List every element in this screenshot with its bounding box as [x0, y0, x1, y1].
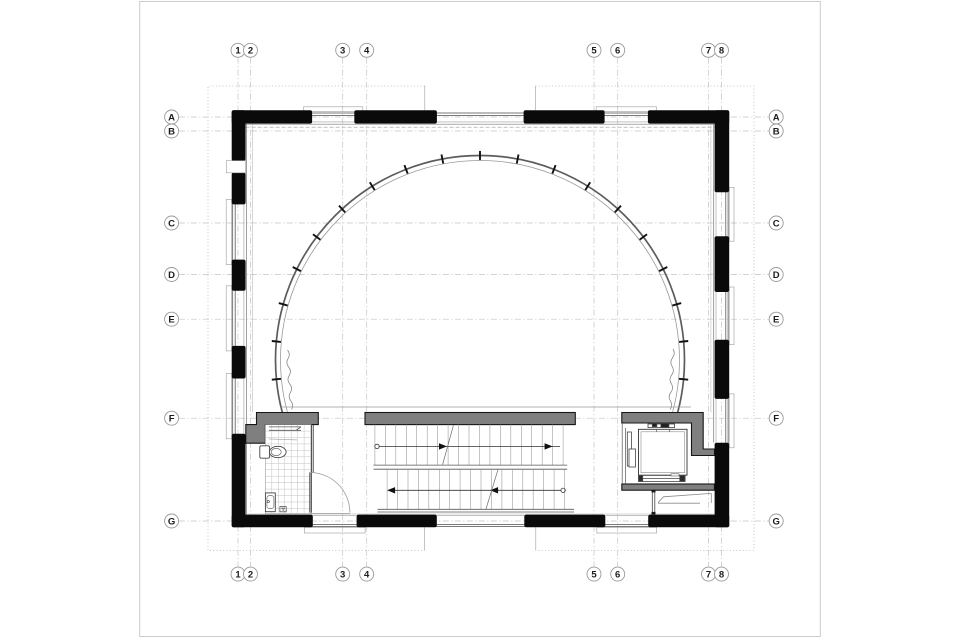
svg-text:5: 5: [591, 569, 597, 580]
svg-text:6: 6: [615, 569, 620, 580]
svg-text:8: 8: [719, 46, 724, 57]
svg-text:D: D: [168, 270, 175, 281]
svg-text:1: 1: [235, 569, 241, 580]
svg-text:B: B: [168, 126, 175, 137]
svg-text:A: A: [773, 112, 780, 123]
svg-text:E: E: [168, 315, 174, 326]
svg-text:6: 6: [615, 46, 620, 57]
svg-text:G: G: [773, 516, 780, 527]
svg-text:5: 5: [591, 46, 597, 57]
svg-text:8: 8: [719, 569, 724, 580]
svg-text:3: 3: [340, 569, 345, 580]
svg-text:E: E: [773, 315, 779, 326]
svg-text:C: C: [168, 218, 175, 229]
svg-text:1: 1: [235, 46, 241, 57]
svg-text:4: 4: [364, 569, 370, 580]
svg-text:4: 4: [364, 46, 370, 57]
svg-text:7: 7: [706, 569, 711, 580]
svg-text:3: 3: [340, 46, 345, 57]
svg-text:A: A: [168, 112, 175, 123]
svg-text:B: B: [773, 126, 780, 137]
svg-text:G: G: [168, 516, 175, 527]
svg-text:2: 2: [248, 569, 253, 580]
svg-text:7: 7: [706, 46, 711, 57]
svg-text:F: F: [169, 414, 175, 425]
svg-text:F: F: [773, 414, 779, 425]
svg-text:C: C: [773, 218, 780, 229]
svg-text:D: D: [773, 270, 780, 281]
svg-text:2: 2: [248, 46, 253, 57]
